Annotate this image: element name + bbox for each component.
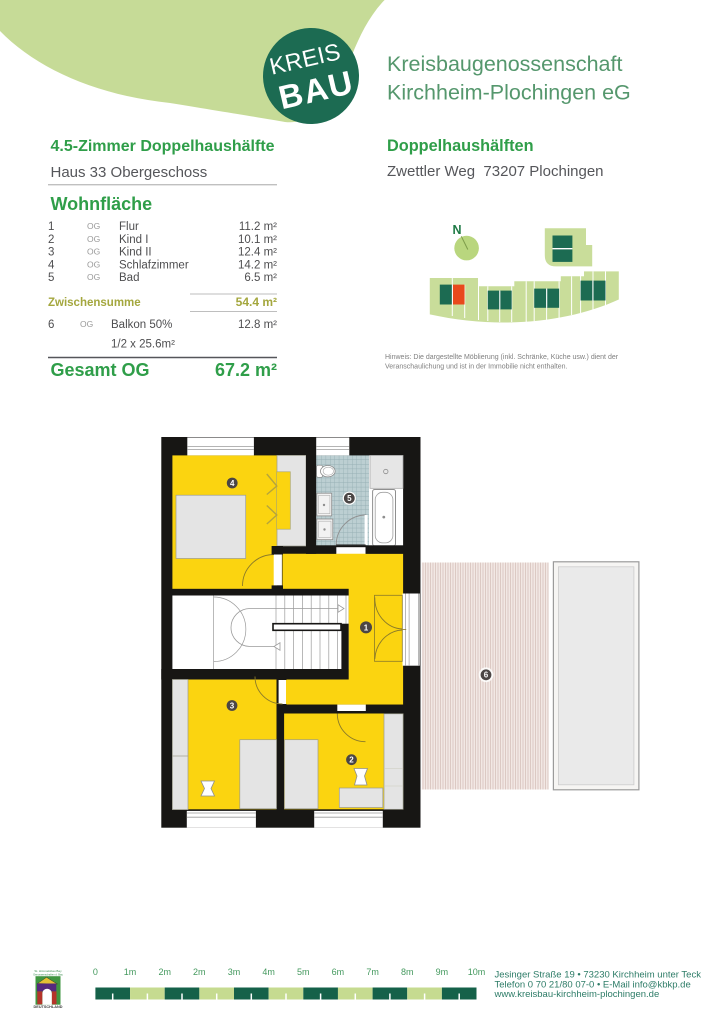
svg-text:14.2 m²: 14.2 m²	[238, 259, 277, 271]
svg-text:4m: 4m	[262, 967, 275, 977]
svg-text:Veranschaulichung und ist in d: Veranschaulichung und ist in der Immobil…	[385, 364, 568, 371]
svg-text:1: 1	[48, 221, 54, 233]
svg-text:6: 6	[484, 671, 489, 680]
svg-text:www.kreisbau-kirchheim-plochin: www.kreisbau-kirchheim-plochingen.de	[494, 989, 660, 1000]
svg-text:Schlafzimmer: Schlafzimmer	[119, 259, 189, 271]
svg-text:Balkon 50%: Balkon 50%	[111, 319, 172, 331]
svg-text:2m: 2m	[193, 967, 206, 977]
svg-text:2m: 2m	[158, 967, 171, 977]
svg-text:OG: OG	[87, 247, 100, 257]
svg-text:8m: 8m	[401, 967, 414, 977]
svg-text:11.2 m²: 11.2 m²	[239, 221, 277, 233]
svg-text:67.2 m²: 67.2 m²	[215, 360, 277, 380]
svg-text:Doppelhaushälften: Doppelhaushälften	[387, 137, 534, 155]
svg-text:3: 3	[230, 701, 235, 710]
svg-text:54.4 m²: 54.4 m²	[236, 295, 277, 309]
svg-text:1/2 x 25.6m²: 1/2 x 25.6m²	[111, 339, 175, 351]
svg-text:N: N	[453, 223, 462, 237]
svg-text:Kirchheim-Plochingen eG: Kirchheim-Plochingen eG	[387, 81, 631, 105]
svg-text:Zwischensumme: Zwischensumme	[48, 297, 141, 309]
svg-text:6.5 m²: 6.5 m²	[244, 272, 277, 284]
svg-text:3: 3	[48, 247, 54, 259]
svg-text:DEUTSCHLAND: DEUTSCHLAND	[34, 1005, 63, 1009]
svg-text:OG: OG	[87, 221, 100, 231]
svg-text:Kind II: Kind II	[119, 247, 152, 259]
svg-text:12.4 m²: 12.4 m²	[238, 247, 277, 259]
svg-text:Bad: Bad	[119, 272, 139, 284]
svg-text:2: 2	[349, 756, 354, 765]
svg-text:10.1 m²: 10.1 m²	[238, 234, 277, 246]
svg-text:9m: 9m	[436, 967, 449, 977]
svg-text:Kreisbaugenossenschaft: Kreisbaugenossenschaft	[387, 52, 622, 76]
svg-text:1m: 1m	[124, 967, 137, 977]
svg-text:Wohnfläche: Wohnfläche	[51, 194, 153, 214]
svg-text:7m: 7m	[366, 967, 379, 977]
svg-text:Genossenschaften d. Bau: Genossenschaften d. Bau	[33, 972, 63, 976]
svg-text:Haus 33 Obergeschoss: Haus 33 Obergeschoss	[51, 164, 208, 181]
svg-text:OG: OG	[87, 272, 100, 282]
svg-text:Kind I: Kind I	[119, 234, 148, 246]
svg-text:6: 6	[48, 319, 54, 331]
svg-text:12.8 m²: 12.8 m²	[238, 319, 277, 331]
svg-text:OG: OG	[87, 234, 100, 244]
svg-text:2: 2	[48, 234, 54, 246]
svg-text:4: 4	[230, 479, 235, 488]
svg-text:Zwettler Weg 73207 Plochingen: Zwettler Weg 73207 Plochingen	[387, 163, 604, 180]
svg-text:OG: OG	[87, 259, 100, 269]
svg-text:5m: 5m	[297, 967, 310, 977]
svg-text:Flur: Flur	[119, 221, 139, 233]
svg-text:0: 0	[93, 967, 98, 977]
svg-text:OG: OG	[80, 319, 93, 329]
svg-text:5: 5	[347, 494, 352, 503]
svg-text:4.5-Zimmer Doppelhaushälfte: 4.5-Zimmer Doppelhaushälfte	[51, 138, 275, 155]
svg-text:Gesamt OG: Gesamt OG	[51, 360, 150, 380]
svg-text:1: 1	[364, 623, 369, 632]
svg-text:3m: 3m	[228, 967, 241, 977]
svg-text:5: 5	[48, 272, 54, 284]
svg-text:10m: 10m	[468, 967, 486, 977]
svg-text:4: 4	[48, 259, 55, 271]
svg-text:Hinweis: Die dargestellte Möbl: Hinweis: Die dargestellte Möblierung (in…	[385, 354, 619, 361]
svg-text:6m: 6m	[332, 967, 345, 977]
